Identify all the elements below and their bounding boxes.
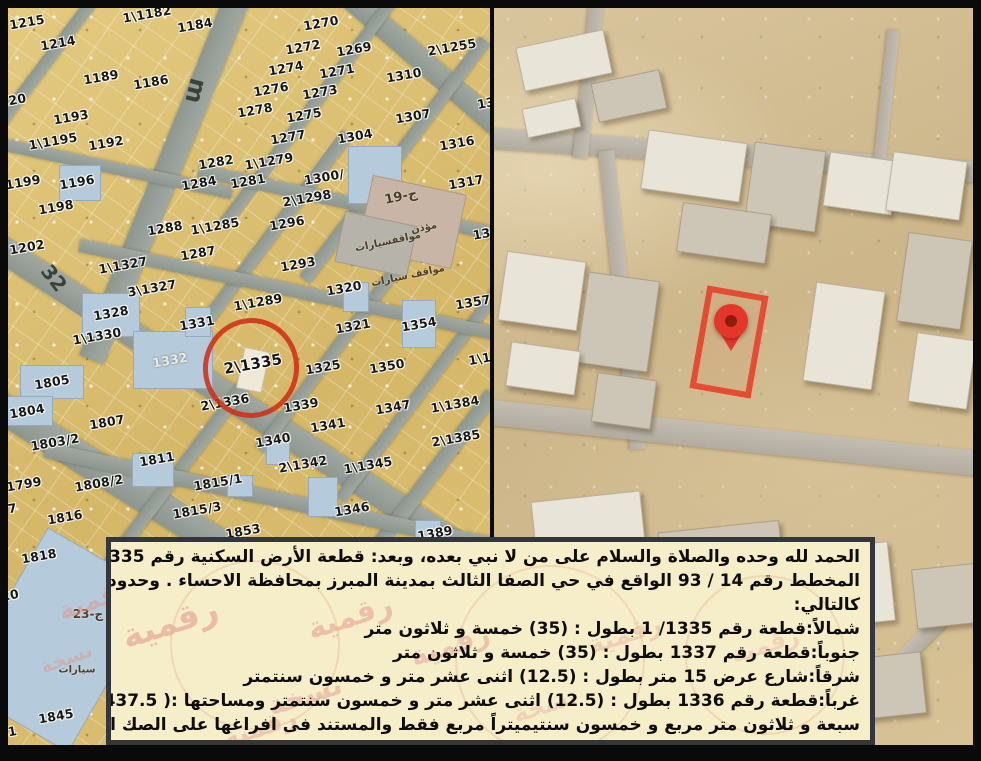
parcel-label: 1186 [132, 72, 170, 93]
building [907, 332, 973, 410]
parcel-label: 1325 [304, 357, 342, 378]
location-pin-icon[interactable] [714, 304, 748, 354]
parcel-label: 220 [8, 90, 27, 109]
parcel-label: 1317 [447, 172, 485, 193]
pin-head [714, 304, 748, 338]
parcel-label: 1282 [197, 152, 235, 173]
road [494, 397, 973, 479]
building [640, 129, 747, 202]
parcel-label: 1202 [8, 237, 46, 258]
building [911, 563, 973, 630]
deed-line: شمالاً:قطعة رقم 1335/ 1 بطول : (35) خمسة… [121, 617, 860, 641]
parcel-label: 1271 [318, 61, 356, 82]
parcel-label: 1184 [176, 15, 214, 36]
parcel-label: 41 [8, 723, 18, 741]
parcel-label: 1273 [301, 82, 339, 103]
building [591, 69, 668, 123]
deed-line: المخطط رقم 14 / 93 الواقع في حي الصفا ال… [121, 569, 860, 593]
parcel-label: 13 [476, 94, 490, 112]
parcel-label: 1278 [236, 100, 274, 121]
building [505, 341, 581, 395]
building [885, 151, 968, 221]
parcel-label: 1192 [87, 133, 125, 154]
building [498, 251, 587, 331]
parcel-label: 1341 [309, 415, 347, 436]
parcel-label: 1310 [385, 65, 423, 86]
parcel-label: 1\1289 [232, 290, 283, 313]
parcel-label: 1270 [302, 13, 340, 34]
deed-image: 121512141\118211841189118622011931\11951… [0, 0, 981, 761]
parcel-label: 1321 [334, 316, 372, 337]
deed-text: الحمد لله وحده والصلاة والسلام على من لا… [111, 542, 870, 737]
building [591, 372, 657, 430]
parcel-label: 1269 [335, 39, 373, 60]
parcel-label: 1277 [269, 127, 307, 148]
area-label: ج-23 [73, 607, 103, 621]
deed-text-box: رقميةرقميةنسخةرقميةرقميةرقميةنسخةرقمية ا… [106, 537, 875, 745]
parcel-label: 1\1285 [189, 214, 240, 237]
parcel-label: 1214 [39, 33, 77, 54]
parcel-label: 1189 [82, 67, 120, 88]
area-label: سيارات [59, 665, 96, 676]
parcel-label: 1193 [52, 107, 90, 128]
parcel-label: 1215 [8, 12, 46, 33]
deed-line: كالتالي: [121, 593, 860, 617]
building [802, 282, 885, 391]
road [873, 30, 900, 170]
building [896, 232, 973, 330]
parcel-label: 1296 [268, 213, 306, 234]
parcel-label: 1287 [179, 243, 217, 264]
parcel-label: 1198 [37, 197, 75, 218]
parcel-label: 1274 [267, 58, 305, 79]
parcel-label: 1807 [88, 412, 126, 433]
parcel-label: 1275 [285, 105, 323, 126]
parcel-label: 1\1182 [121, 8, 172, 26]
deed-line: شرقاً:شارع عرض 15 متر بطول : (12.5) اثنى… [121, 665, 860, 689]
parcel-label: 1316 [438, 133, 476, 154]
parcel-label: 1799 [8, 474, 43, 495]
deed-line: غرباً:قطعة رقم 1336 بطول : (12.5) اثنى ع… [121, 689, 860, 713]
parcel-label: 97 [8, 500, 18, 518]
building [576, 271, 660, 372]
parcel-label: 1\13 [467, 348, 490, 368]
deed-line: الحمد لله وحده والصلاة والسلام على من لا… [121, 545, 860, 569]
parcel-label: 1276 [252, 79, 290, 100]
deed-line: جنوباً:قطعة رقم 1337 بطول : (35) خمسة و … [121, 641, 860, 665]
deed-line: سبعة و ثلاثون متر مربع و خمسون سنتيميترا… [121, 713, 860, 737]
parcel-label: 1816 [46, 507, 84, 528]
parcel-label: 1304 [336, 126, 374, 147]
parcel-label: 1199 [8, 172, 42, 193]
parcel-label: 1272 [284, 37, 322, 58]
parcel-label: 1300/ [303, 166, 345, 188]
parcel-label: 1350 [368, 356, 406, 377]
